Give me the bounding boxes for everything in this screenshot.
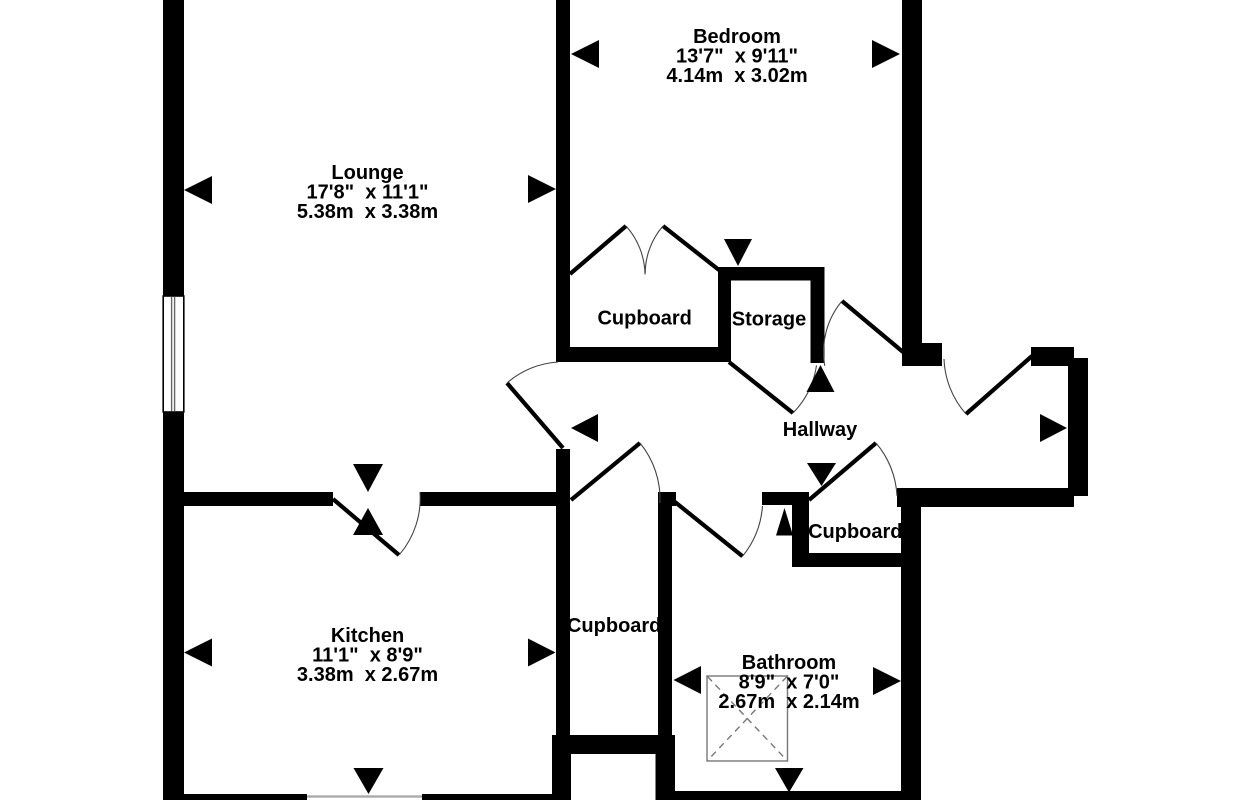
svg-text:2.67m x 2.14m: 2.67m x 2.14m	[718, 691, 859, 713]
svg-text:Cupboard: Cupboard	[567, 615, 661, 637]
svg-text:Cupboard: Cupboard	[808, 521, 902, 543]
svg-text:Cupboard: Cupboard	[597, 307, 691, 329]
svg-text:4.14m x 3.02m: 4.14m x 3.02m	[666, 65, 807, 87]
svg-text:5.38m x 3.38m: 5.38m x 3.38m	[297, 201, 438, 223]
svg-text:3.38m x 2.67m: 3.38m x 2.67m	[297, 664, 438, 686]
svg-text:Hallway: Hallway	[783, 419, 858, 441]
svg-text:Storage: Storage	[732, 308, 806, 330]
